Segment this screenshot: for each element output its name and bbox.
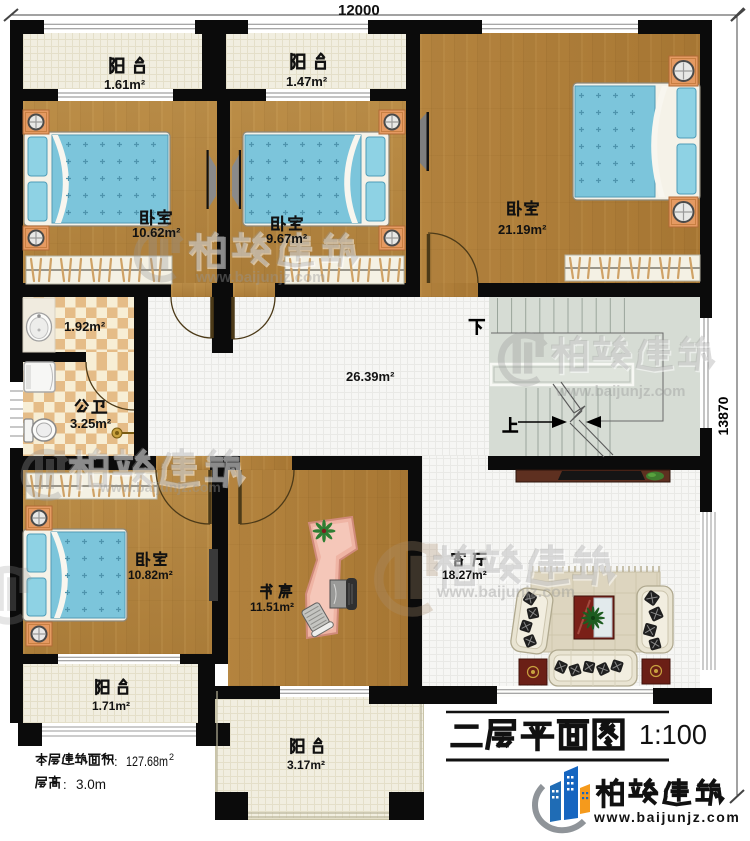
svg-text::: : xyxy=(114,754,118,769)
svg-text:127.68m: 127.68m xyxy=(126,754,168,769)
svg-text:www.baijunjz.com: www.baijunjz.com xyxy=(555,383,685,400)
svg-text::: : xyxy=(63,777,67,792)
svg-text:www.baijunjz.com: www.baijunjz.com xyxy=(195,269,325,286)
svg-text:www.baijunjz.com: www.baijunjz.com xyxy=(99,479,221,495)
svg-text:2: 2 xyxy=(169,752,174,762)
svg-text:www.baijunjz.com: www.baijunjz.com xyxy=(436,584,575,601)
svg-text:3.0m: 3.0m xyxy=(76,777,106,792)
svg-text:1:100: 1:100 xyxy=(639,719,707,750)
svg-text:www.baijunjz.com: www.baijunjz.com xyxy=(593,809,740,825)
